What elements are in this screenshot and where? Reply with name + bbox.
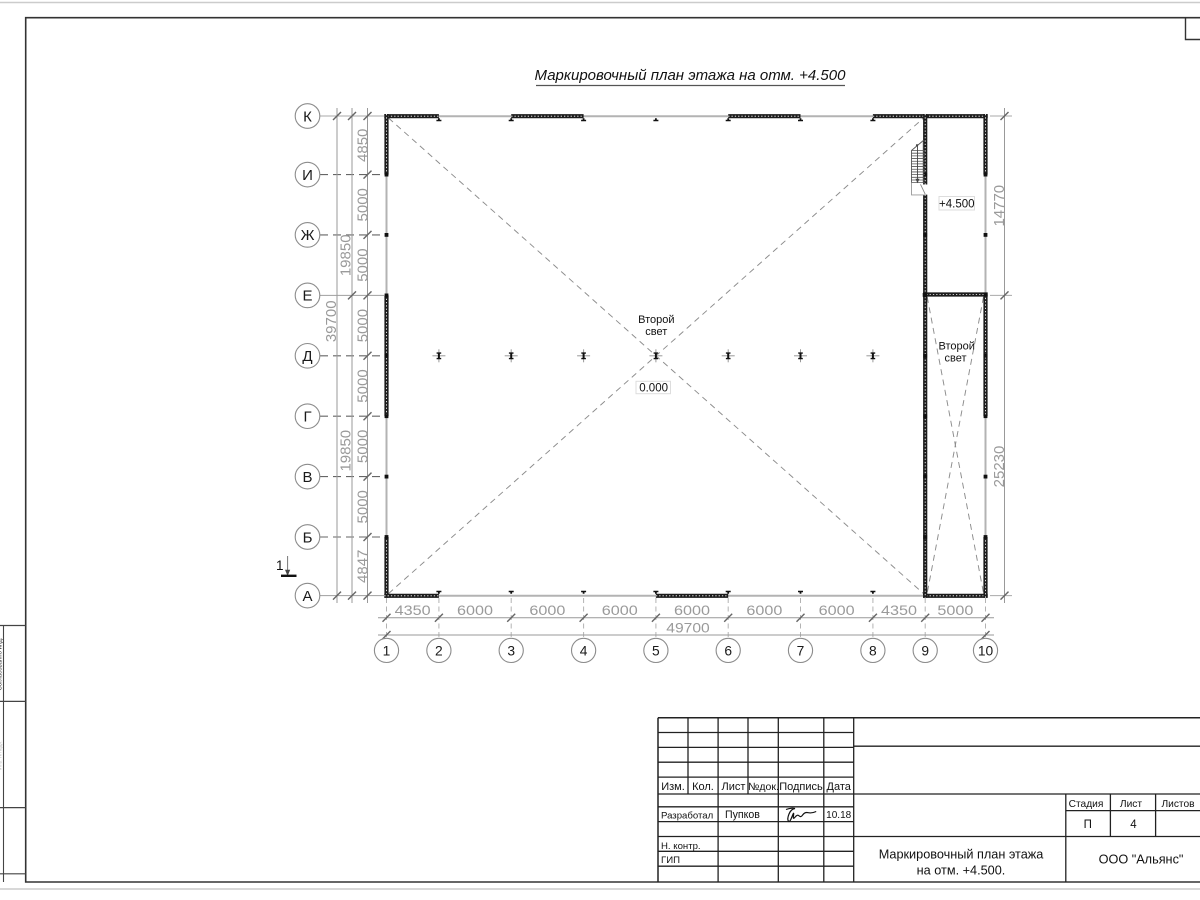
svg-text:Ж: Ж <box>301 227 315 244</box>
svg-text:4: 4 <box>1130 819 1137 831</box>
svg-text:свет: свет <box>645 326 667 338</box>
svg-text:5000: 5000 <box>937 603 973 618</box>
svg-text:4850: 4850 <box>354 129 371 162</box>
svg-text:6000: 6000 <box>602 603 638 618</box>
svg-text:Второй: Второй <box>939 341 975 353</box>
svg-text:Г: Г <box>303 409 311 426</box>
svg-text:14770: 14770 <box>991 185 1008 227</box>
svg-text:на отм. +4.500.: на отм. +4.500. <box>917 864 1006 878</box>
svg-text:0.000: 0.000 <box>639 383 668 395</box>
svg-text:Н. контр.: Н. контр. <box>661 841 701 852</box>
svg-text:№док.: №док. <box>748 781 779 793</box>
svg-text:6000: 6000 <box>746 603 782 618</box>
svg-text:Маркировочный план этажа на от: Маркировочный план этажа на отм. +4.500 <box>535 67 847 84</box>
svg-text:Лист: Лист <box>1120 799 1142 810</box>
svg-text:Маркировочный план этажа: Маркировочный план этажа <box>879 848 1045 862</box>
svg-text:4350: 4350 <box>881 603 917 618</box>
svg-text:3: 3 <box>507 643 515 658</box>
svg-text:5000: 5000 <box>354 490 371 523</box>
svg-text:19850: 19850 <box>338 234 355 276</box>
svg-text:Согласованно инд.: Согласованно инд. <box>0 637 4 690</box>
svg-text:1: 1 <box>276 558 284 573</box>
svg-text:Лист: Лист <box>722 781 746 793</box>
svg-text:1: 1 <box>383 643 391 658</box>
svg-text:И: И <box>302 167 313 184</box>
svg-text:6000: 6000 <box>819 603 855 618</box>
svg-text:К: К <box>303 108 312 125</box>
svg-text:свет: свет <box>944 352 966 364</box>
svg-text:39700: 39700 <box>323 300 340 342</box>
svg-text:5000: 5000 <box>354 369 371 402</box>
svg-text:А: А <box>302 588 312 605</box>
svg-text:7: 7 <box>797 643 805 658</box>
svg-text:5000: 5000 <box>354 188 371 221</box>
svg-text:8: 8 <box>869 643 877 658</box>
svg-text:5000: 5000 <box>354 430 371 463</box>
svg-text:Разработал: Разработал <box>661 811 713 822</box>
svg-text:Дата: Дата <box>827 781 852 793</box>
svg-text:В: В <box>302 469 312 486</box>
svg-text:5000: 5000 <box>354 248 371 281</box>
svg-text:4847: 4847 <box>354 550 371 583</box>
svg-text:4: 4 <box>580 643 588 658</box>
svg-text:49700: 49700 <box>666 620 710 635</box>
svg-text:Е: Е <box>302 288 312 305</box>
svg-text:Б: Б <box>303 529 313 546</box>
svg-text:5: 5 <box>652 643 660 658</box>
svg-text:Второй: Второй <box>638 314 674 326</box>
svg-text:5000: 5000 <box>354 309 371 342</box>
svg-text:4350: 4350 <box>395 603 431 618</box>
svg-text:ГИП: ГИП <box>661 855 680 866</box>
svg-text:Изм.: Изм. <box>661 781 685 793</box>
svg-text:2: 2 <box>435 643 443 658</box>
svg-text:Д: Д <box>302 348 312 365</box>
svg-text:10.18: 10.18 <box>826 810 851 821</box>
svg-text:9: 9 <box>921 643 929 658</box>
svg-text:6000: 6000 <box>529 603 565 618</box>
svg-text:+4.500: +4.500 <box>939 198 975 210</box>
svg-text:Пупков: Пупков <box>725 809 760 821</box>
svg-text:Инв. N подл.: Инв. N подл. <box>0 740 4 769</box>
svg-text:Подпись: Подпись <box>779 781 823 793</box>
svg-text:10: 10 <box>978 643 994 658</box>
svg-text:6000: 6000 <box>457 603 493 618</box>
svg-text:6: 6 <box>724 643 732 658</box>
svg-text:25230: 25230 <box>991 446 1008 488</box>
svg-text:П: П <box>1084 819 1092 831</box>
svg-text:Кол.: Кол. <box>692 781 714 793</box>
svg-text:6000: 6000 <box>674 603 710 618</box>
svg-text:Листов: Листов <box>1161 799 1194 810</box>
svg-text:ООО "Альянс": ООО "Альянс" <box>1099 853 1184 867</box>
svg-text:19850: 19850 <box>338 430 355 472</box>
svg-text:Стадия: Стадия <box>1069 799 1104 810</box>
